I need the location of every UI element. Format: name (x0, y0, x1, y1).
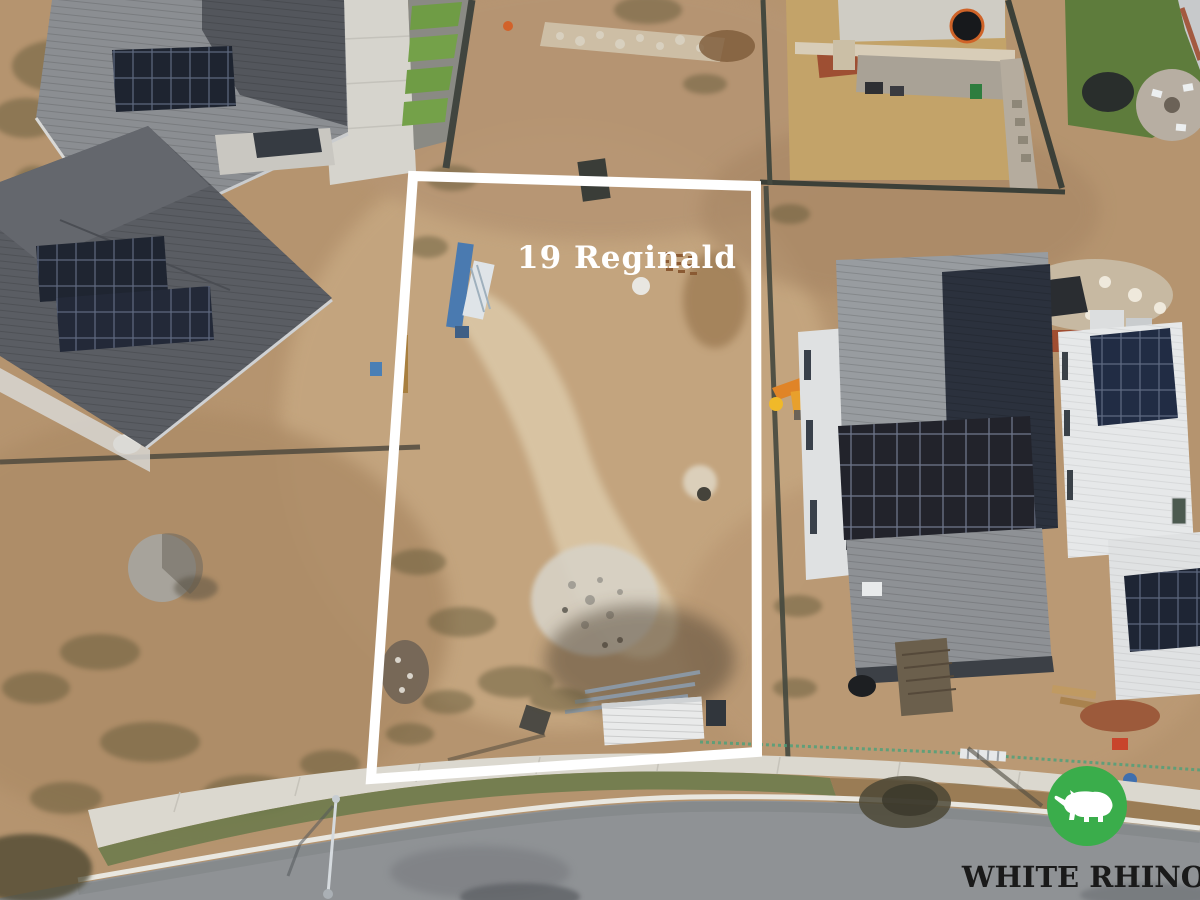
green-bin (970, 84, 982, 99)
trampoline (951, 10, 983, 42)
dirt-pile (699, 30, 755, 62)
dark-crate (706, 700, 726, 726)
blue-bin (370, 362, 382, 376)
property-label: 19 Reginald (517, 240, 737, 276)
skylight (1172, 498, 1186, 524)
stone-steps (833, 40, 855, 70)
aerial-photo: 19 Reginald WHITE RHINO (0, 0, 1200, 900)
brick-pile (1080, 700, 1160, 732)
brand-name: WHITE RHINO (962, 860, 1200, 894)
brand-logo (1047, 766, 1127, 846)
ac-unit (862, 582, 882, 596)
red-box (1112, 738, 1128, 750)
rubbish-pile (381, 640, 429, 704)
container-shed (602, 697, 705, 746)
black-bag (848, 675, 876, 697)
orange-marker (503, 21, 513, 31)
play-equipment (1082, 72, 1134, 112)
white-tank (632, 277, 650, 295)
aerial-scene (0, 0, 1200, 900)
pit-hole (697, 487, 711, 501)
